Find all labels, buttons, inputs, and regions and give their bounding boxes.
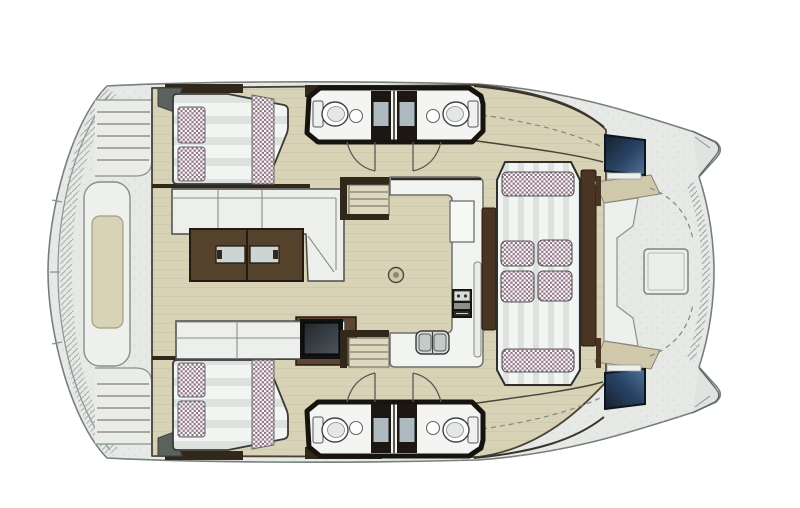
sink-basin xyxy=(434,334,446,351)
tv-screen xyxy=(304,323,339,354)
seat-cushion xyxy=(538,240,572,266)
burner xyxy=(464,294,467,297)
forward-lounge-berth xyxy=(482,162,596,385)
transom-steps-starboard xyxy=(95,368,152,444)
hatch-ledge xyxy=(607,173,641,179)
counter-fiddle xyxy=(474,262,481,357)
berth-side-step xyxy=(581,170,596,346)
aft-sunpad xyxy=(84,182,130,366)
stove-burners xyxy=(454,291,470,301)
burner xyxy=(457,294,460,297)
toilet-bowl xyxy=(447,107,464,122)
cockpit-table xyxy=(644,249,688,294)
seat-cushion xyxy=(538,271,572,301)
toilet-bowl xyxy=(328,107,345,122)
tray-handle xyxy=(273,250,278,259)
galley-back-wall xyxy=(340,177,390,185)
sink-basin xyxy=(419,334,431,351)
cockpit-wall xyxy=(596,176,601,206)
shower-tray xyxy=(374,102,389,126)
bolster-cushion xyxy=(502,349,574,372)
bed-runner xyxy=(252,95,274,184)
bow-hatch-window xyxy=(605,135,645,175)
floor-plan-canvas xyxy=(0,0,800,508)
saloon xyxy=(172,189,356,365)
washbasin xyxy=(427,110,440,123)
pillow xyxy=(178,147,205,181)
pillow xyxy=(178,107,205,143)
seat-cushion xyxy=(501,241,534,266)
tray-handle xyxy=(217,250,222,259)
fridge-top xyxy=(450,201,474,242)
seat-cushion xyxy=(501,271,534,302)
bolster-cushion xyxy=(502,172,574,196)
floor-plan-page xyxy=(0,0,800,508)
transom-steps-port xyxy=(95,100,152,176)
shower-tray xyxy=(400,102,415,126)
floor-hatch-ring xyxy=(393,272,399,278)
washbasin xyxy=(350,110,363,123)
oven-control xyxy=(454,303,470,309)
berth-side-step xyxy=(482,208,496,330)
